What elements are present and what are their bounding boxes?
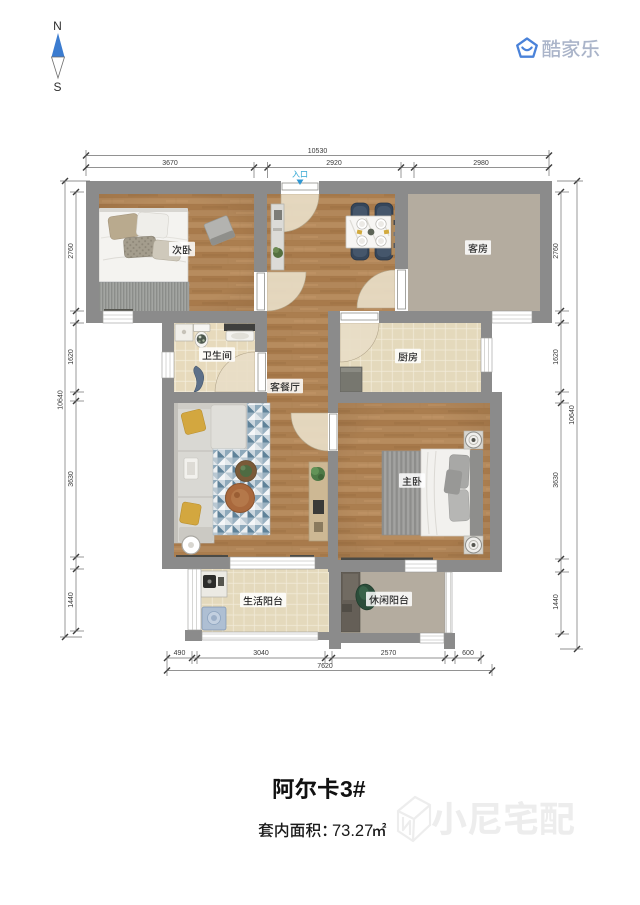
- svg-text:3630: 3630: [68, 471, 75, 487]
- svg-text:10640: 10640: [58, 390, 65, 410]
- svg-text:10530: 10530: [308, 148, 328, 155]
- svg-text:2570: 2570: [381, 650, 397, 657]
- svg-text:490: 490: [174, 650, 186, 657]
- svg-text:7620: 7620: [317, 663, 333, 670]
- svg-text:1620: 1620: [553, 349, 560, 365]
- svg-text:S: S: [53, 80, 61, 94]
- svg-text:3#: 3#: [340, 776, 366, 802]
- svg-text:2760: 2760: [553, 243, 560, 259]
- svg-text:3670: 3670: [162, 160, 178, 167]
- svg-text:3040: 3040: [253, 650, 269, 657]
- svg-text:1440: 1440: [68, 592, 75, 608]
- svg-text:2760: 2760: [68, 243, 75, 259]
- svg-text:N: N: [53, 19, 62, 33]
- svg-text:2980: 2980: [473, 160, 489, 167]
- svg-text:2920: 2920: [326, 160, 342, 167]
- svg-text:1440: 1440: [553, 594, 560, 610]
- svg-text:10640: 10640: [569, 405, 576, 425]
- svg-text:600: 600: [462, 650, 474, 657]
- svg-text:1620: 1620: [68, 349, 75, 365]
- svg-text:73.27: 73.27: [332, 822, 373, 840]
- svg-text:3630: 3630: [553, 472, 560, 488]
